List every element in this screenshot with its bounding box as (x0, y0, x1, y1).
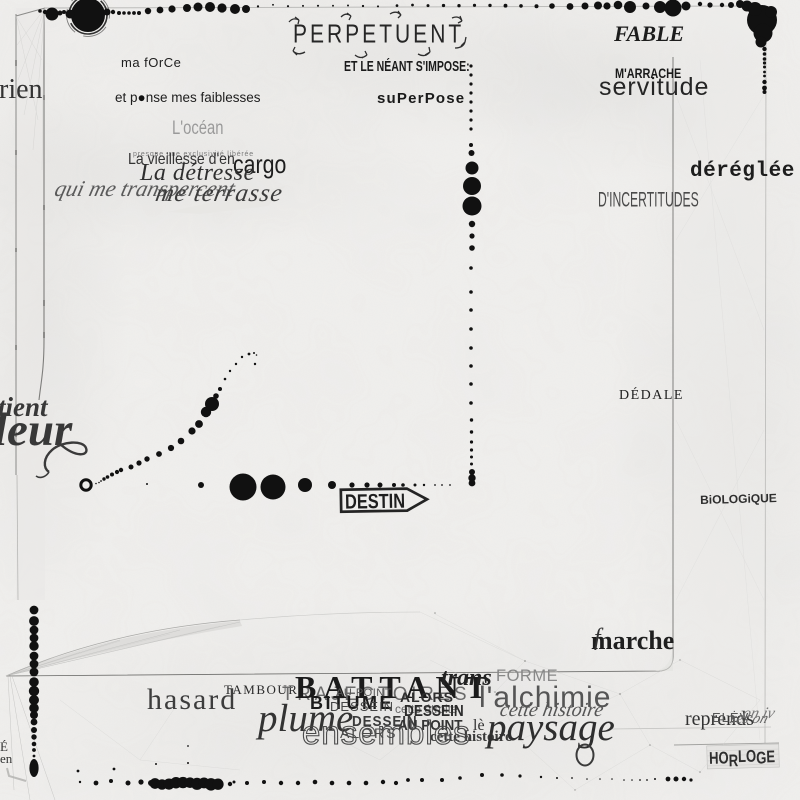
svg-text:DESTIN: DESTIN (345, 490, 405, 514)
